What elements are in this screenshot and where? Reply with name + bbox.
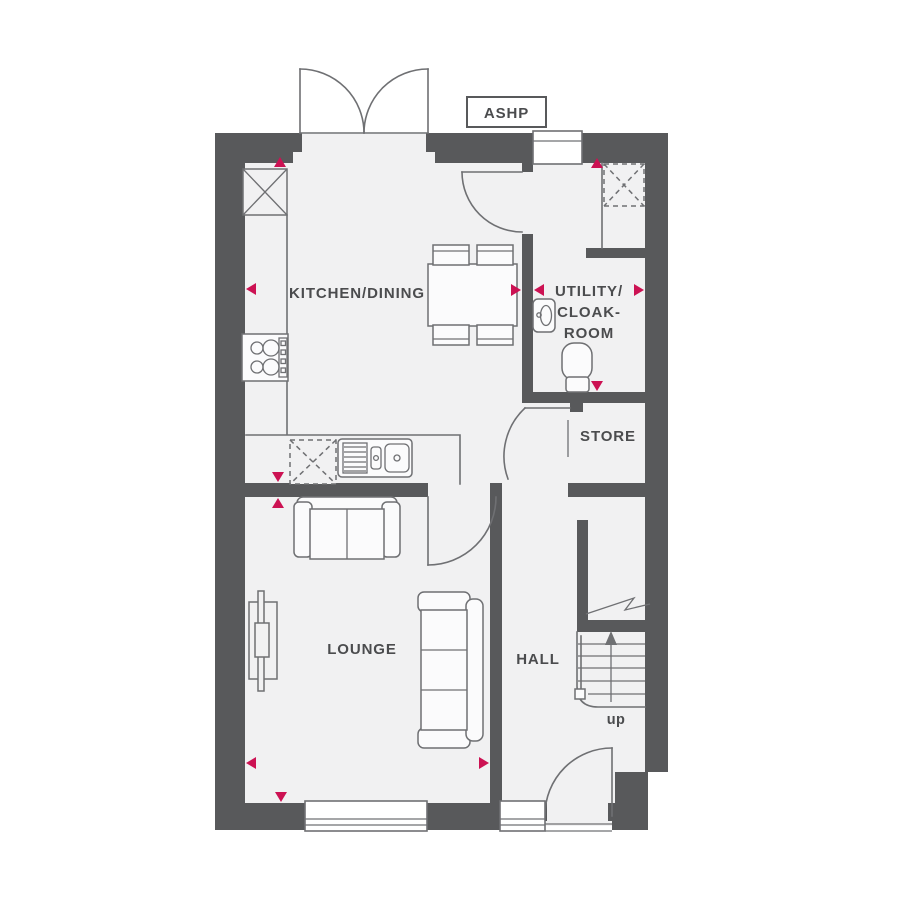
sink	[338, 439, 412, 477]
room-label-lounge: LOUNGE	[327, 641, 397, 658]
cylinder-space	[604, 164, 644, 206]
french-doors	[300, 69, 428, 133]
toilet	[562, 343, 592, 392]
kitchen-unit-cupboard	[243, 169, 287, 215]
washer-space	[290, 440, 336, 484]
hall-window	[500, 801, 545, 831]
room-label-utility-line2: CLOAK-	[557, 304, 621, 321]
utility-top-window	[533, 131, 582, 164]
room-label-utility-line1: UTILITY/	[555, 283, 623, 300]
tv-unit	[249, 591, 277, 691]
floor-plan: ASHP KITCHEN/DINING UTILITY/ CLOAK- ROOM…	[0, 0, 900, 900]
dining-table	[428, 264, 517, 326]
room-label-kitchen-dining: KITCHEN/DINING	[289, 285, 425, 302]
hob	[242, 334, 288, 381]
room-label-store: STORE	[580, 428, 636, 445]
exterior-notch	[648, 772, 674, 834]
newel-post	[575, 689, 585, 699]
ashp-callout: ASHP	[467, 97, 546, 127]
loveseat-sofa	[294, 497, 400, 559]
hand-basin	[533, 299, 555, 332]
stairs-up-label: up	[607, 712, 626, 728]
floor-plan-canvas: ASHP KITCHEN/DINING UTILITY/ CLOAK- ROOM…	[0, 0, 900, 900]
room-label-hall: HALL	[516, 651, 560, 668]
sofa	[418, 592, 483, 748]
lounge-window	[305, 801, 427, 831]
ashp-label: ASHP	[484, 105, 529, 122]
room-label-utility-line3: ROOM	[564, 325, 614, 342]
